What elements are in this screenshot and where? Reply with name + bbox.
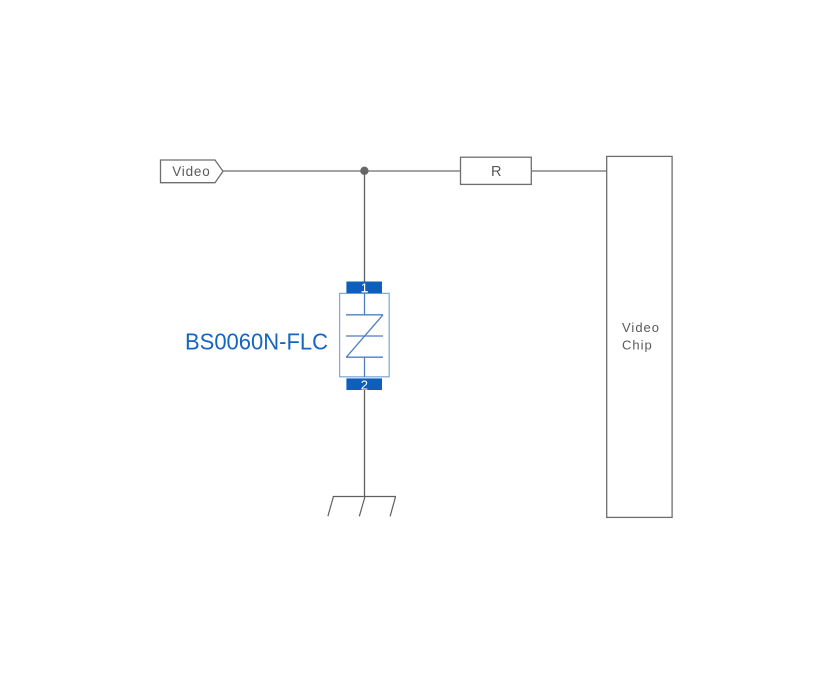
svg-text:BS0060N-FLC: BS0060N-FLC — [185, 329, 328, 355]
svg-text:Video: Video — [172, 164, 210, 179]
svg-text:Chip: Chip — [622, 337, 653, 352]
svg-text:R: R — [491, 164, 501, 180]
svg-text:Video: Video — [622, 320, 660, 335]
svg-text:1: 1 — [361, 280, 368, 295]
